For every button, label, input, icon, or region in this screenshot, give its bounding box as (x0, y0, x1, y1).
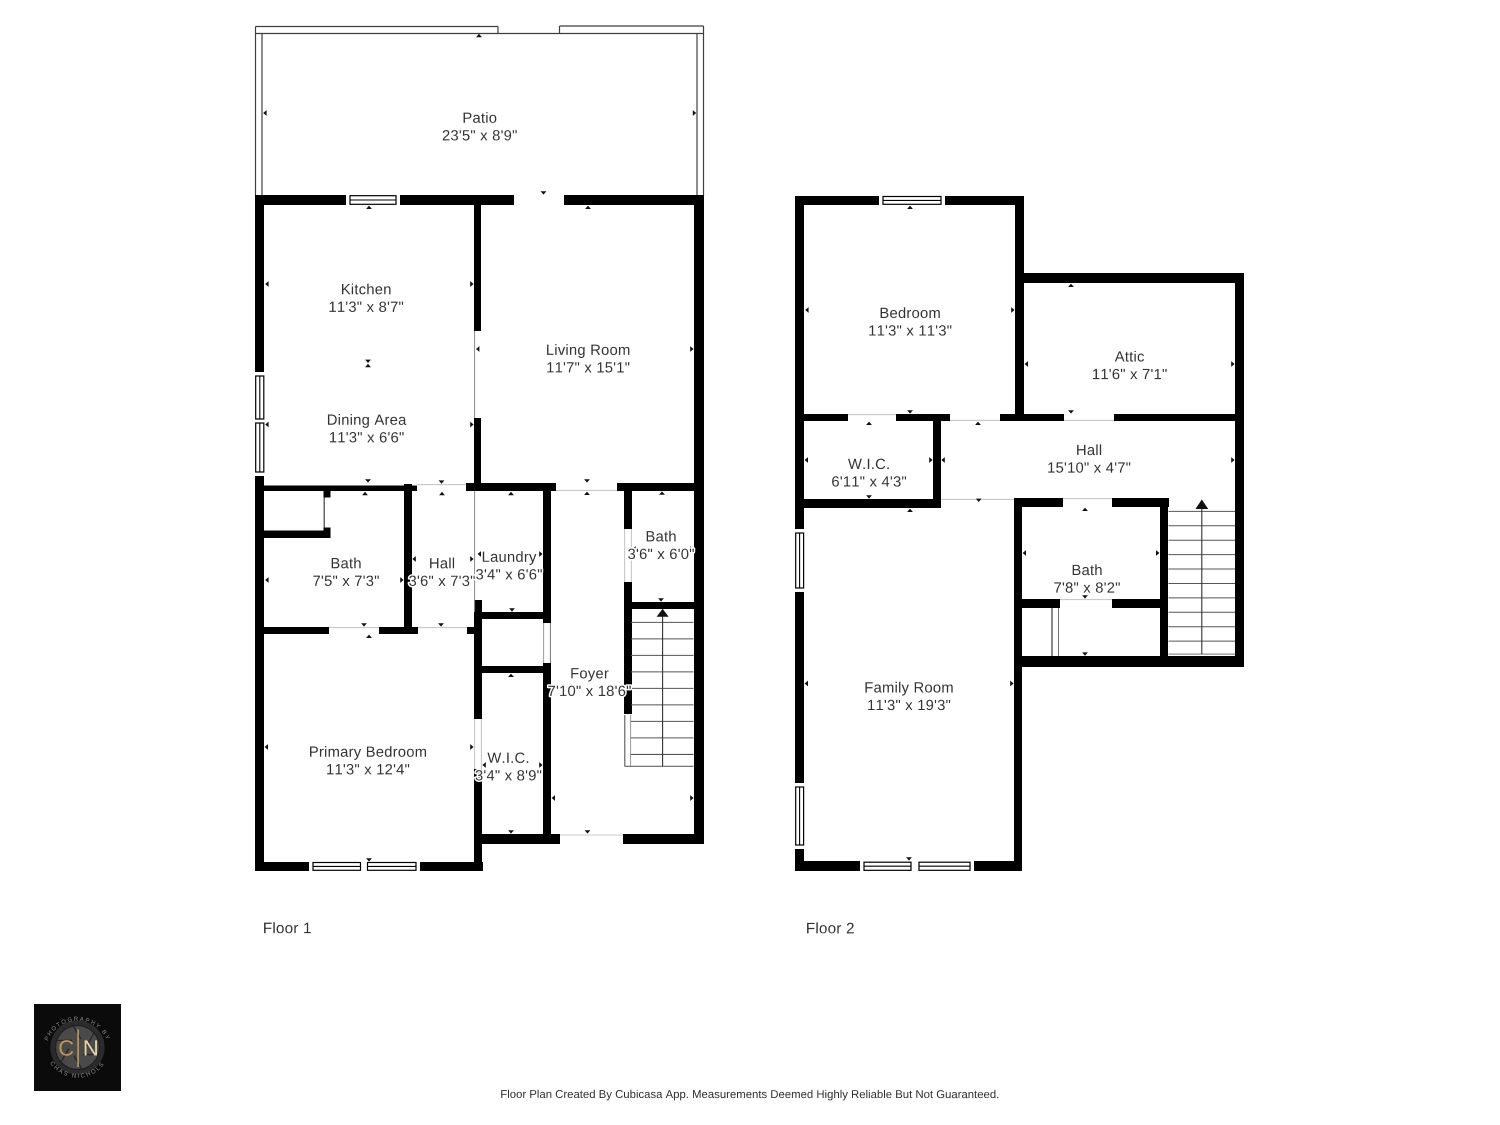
svg-text:N: N (83, 1035, 99, 1060)
svg-text:C: C (58, 1035, 74, 1060)
